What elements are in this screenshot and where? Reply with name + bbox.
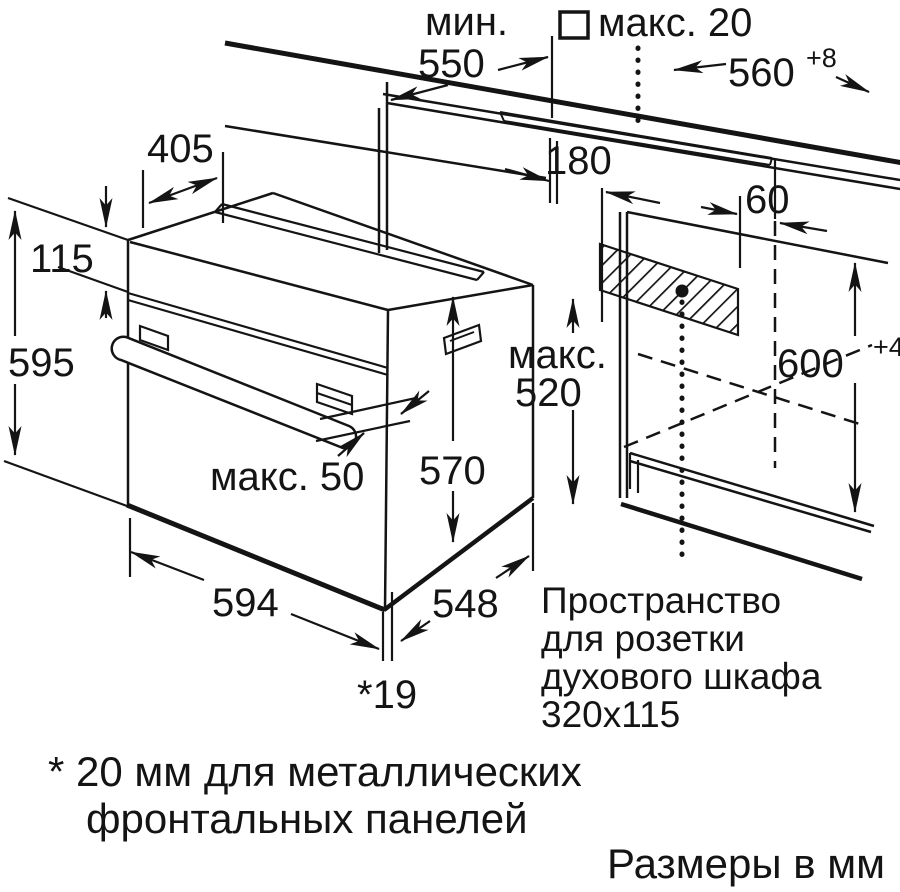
dim-595-ext-bottom bbox=[4, 461, 127, 506]
dim-405-value: 405 bbox=[147, 127, 214, 171]
dim-594-line-right bbox=[291, 614, 379, 649]
dim-548-value: 548 bbox=[432, 582, 499, 626]
cabinet-top-edge bbox=[225, 126, 546, 178]
dim-550-arrow-right bbox=[498, 57, 548, 70]
dim-50-label: макс. 50 bbox=[210, 455, 364, 499]
niche-floor-edge-top bbox=[630, 453, 874, 526]
socket-note-line-3: духового шкафа bbox=[541, 656, 822, 697]
dim-594-line-left bbox=[131, 552, 204, 580]
diagram-canvas: мин. 550 макс. 20 560 +8 405 115 595 180… bbox=[0, 0, 900, 892]
dim-19-value: *19 bbox=[357, 673, 417, 717]
hob-strip-bottom bbox=[504, 121, 770, 165]
dim-548-line-right bbox=[496, 556, 529, 578]
dim-595-ext-top bbox=[8, 198, 128, 240]
plinth-front-edge bbox=[621, 504, 862, 579]
niche bbox=[600, 48, 888, 579]
socket-note-line-2: для розетки bbox=[541, 618, 745, 659]
niche-floor-edge-bottom bbox=[630, 461, 871, 532]
hob-square-icon bbox=[560, 12, 588, 38]
socket-note-line-1: Пространство bbox=[541, 580, 781, 621]
dim-180-arrow-left bbox=[505, 169, 549, 181]
dim-520-value: 520 bbox=[515, 371, 582, 415]
dim-405-line bbox=[149, 178, 217, 203]
installation-diagram: мин. 550 макс. 20 560 +8 405 115 595 180… bbox=[0, 0, 900, 892]
socket-center-dot bbox=[676, 285, 689, 298]
dim-60-value: 60 bbox=[745, 178, 790, 222]
dim-560-arrow-right bbox=[836, 77, 869, 92]
dim-60-arrow-left bbox=[701, 207, 737, 214]
worktop-front-edge-top bbox=[383, 94, 900, 180]
footnote-line-1: * 20 мм для металлических bbox=[48, 748, 582, 795]
units-note: Размеры в мм bbox=[607, 840, 885, 887]
dim-560-arrow-left bbox=[674, 64, 726, 70]
dim-550-prefix: мин. bbox=[425, 0, 508, 44]
dim-594-value: 594 bbox=[212, 581, 279, 625]
dim-550-value: 550 bbox=[418, 42, 485, 86]
socket-note-line-4: 320x115 bbox=[541, 694, 680, 735]
dim-548-line-left bbox=[401, 621, 430, 641]
dim-560-tolerance: +8 bbox=[806, 43, 837, 73]
dim-60-arrow-right bbox=[780, 223, 827, 231]
dim-max20-label: макс. 20 bbox=[598, 1, 752, 45]
dim-600-tolerance: +4 bbox=[873, 332, 900, 362]
dim-560-value: 560 bbox=[728, 51, 795, 95]
dim-180-arrow-right bbox=[606, 192, 660, 203]
dim-180-value: 180 bbox=[545, 139, 612, 183]
footnote-line-2: фронтальных панелей bbox=[86, 795, 528, 842]
dim-595-value: 595 bbox=[8, 341, 75, 385]
dim-570-value: 570 bbox=[419, 449, 486, 493]
dim-550-arrow-left bbox=[391, 85, 448, 100]
dim-115-value: 115 bbox=[30, 237, 94, 281]
dim-600-value: 600 bbox=[777, 342, 844, 386]
